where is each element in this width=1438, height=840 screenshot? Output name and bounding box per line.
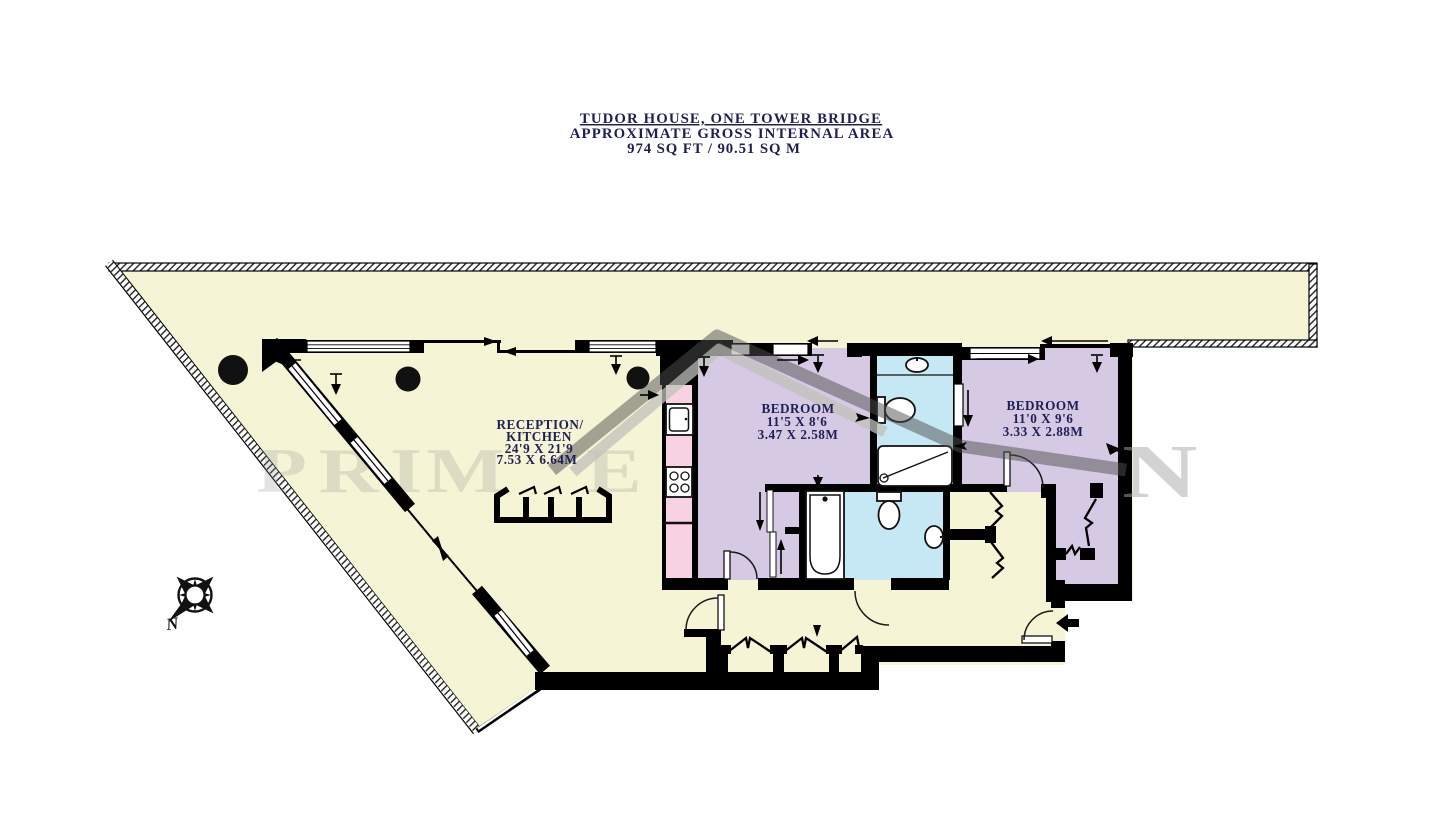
svg-text:N: N — [1122, 429, 1198, 514]
svg-text:P: P — [256, 436, 307, 507]
svg-text:7.53 X 6.64M: 7.53 X 6.64M — [497, 452, 578, 467]
svg-text:M: M — [426, 436, 505, 507]
svg-text:3.33 X 2.88M: 3.33 X 2.88M — [1003, 424, 1084, 439]
svg-text:N: N — [164, 614, 181, 635]
svg-text:3.47 X 2.58M: 3.47 X 2.58M — [758, 427, 839, 442]
svg-text:974 SQ FT / 90.51 SQ M: 974 SQ FT / 90.51 SQ M — [627, 141, 801, 157]
svg-text:E: E — [586, 436, 642, 507]
svg-text:R: R — [319, 436, 381, 507]
svg-text:APPROXIMATE GROSS INTERNAL ARE: APPROXIMATE GROSS INTERNAL AREA — [570, 126, 894, 142]
svg-text:TUDOR HOUSE, ONE TOWER BRIDGE: TUDOR HOUSE, ONE TOWER BRIDGE — [580, 111, 882, 127]
